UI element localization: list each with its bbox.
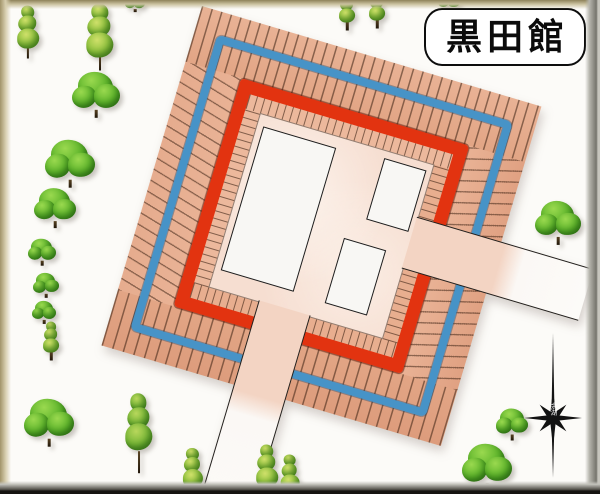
tree-foliage bbox=[33, 280, 46, 292]
tree-trunk bbox=[27, 46, 30, 58]
tree bbox=[34, 273, 58, 298]
tree-foliage bbox=[256, 467, 278, 487]
tree bbox=[126, 0, 144, 12]
fort-compound bbox=[101, 6, 541, 446]
tree-foliage bbox=[45, 154, 70, 177]
tree-foliage bbox=[72, 86, 96, 108]
tree-foliage bbox=[24, 413, 49, 436]
tree-foliage bbox=[556, 213, 580, 235]
tree-foliage bbox=[183, 469, 203, 488]
tree-trunk bbox=[54, 221, 57, 228]
tree bbox=[47, 140, 93, 188]
tree bbox=[256, 445, 278, 494]
tree-foliage bbox=[43, 307, 56, 319]
tree-trunk bbox=[99, 55, 102, 70]
tree-foliage bbox=[86, 32, 113, 57]
north-compass: 余湖 bbox=[505, 330, 597, 480]
tree-foliage bbox=[535, 214, 558, 235]
tree bbox=[86, 4, 113, 71]
tree bbox=[339, 0, 355, 30]
tree-foliage bbox=[41, 246, 56, 260]
site-title-text: 黒田館 bbox=[441, 19, 569, 55]
tree-trunk bbox=[138, 451, 141, 473]
tree bbox=[43, 322, 59, 361]
tree-foliage bbox=[43, 338, 59, 353]
tree bbox=[17, 6, 39, 59]
tree-foliage bbox=[462, 458, 487, 481]
tree-trunk bbox=[41, 261, 44, 266]
tree-foliage bbox=[125, 424, 152, 450]
tree-trunk bbox=[95, 110, 98, 118]
tree bbox=[537, 201, 579, 245]
tree-foliage bbox=[68, 153, 95, 177]
compass-signature: 余湖 bbox=[549, 401, 557, 417]
tree-foliage bbox=[369, 6, 385, 21]
tree-trunk bbox=[48, 438, 51, 447]
tree-foliage bbox=[448, 0, 460, 7]
tree-trunk bbox=[557, 237, 560, 245]
tree-trunk bbox=[69, 179, 72, 188]
tree bbox=[464, 444, 510, 492]
tree bbox=[74, 72, 118, 118]
frame-bevel-bottom bbox=[0, 481, 600, 494]
tree-foliage bbox=[339, 8, 355, 23]
site-title-label: 黒田館 bbox=[424, 8, 586, 66]
tree bbox=[369, 0, 385, 28]
site-illustration: 黒田館 余湖 bbox=[0, 0, 600, 494]
tree-trunk bbox=[50, 352, 53, 360]
frame-bevel-left bbox=[0, 0, 11, 494]
tree-trunk bbox=[45, 293, 48, 298]
tree-trunk bbox=[346, 22, 349, 30]
tree bbox=[183, 448, 203, 494]
tree-foliage bbox=[45, 280, 59, 293]
tree-foliage bbox=[53, 199, 75, 219]
tree bbox=[36, 188, 74, 228]
tree-foliage bbox=[28, 247, 42, 260]
tree-trunk bbox=[486, 483, 489, 492]
compass-star bbox=[524, 389, 582, 447]
tree-trunk bbox=[376, 20, 379, 28]
tree-foliage bbox=[34, 200, 55, 219]
tree-foliage bbox=[281, 474, 300, 491]
tree bbox=[29, 239, 55, 266]
tree-foliage bbox=[134, 0, 144, 8]
tree bbox=[26, 399, 72, 447]
tree-trunk bbox=[134, 9, 137, 12]
tree-foliage bbox=[94, 84, 120, 107]
tree bbox=[281, 455, 300, 494]
compass-graphic: 余湖 bbox=[505, 330, 597, 480]
tree-foliage bbox=[47, 412, 74, 436]
tree-foliage bbox=[17, 28, 39, 48]
tree bbox=[125, 393, 152, 473]
